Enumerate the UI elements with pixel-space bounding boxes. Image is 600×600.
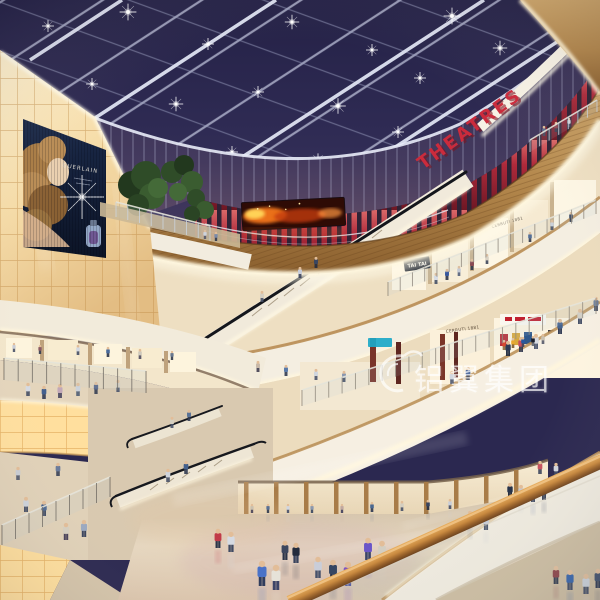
mall-atrium-photo: TAI TAI CERRUTI 1881 THEATRES THEATRES [0, 0, 600, 600]
mall-atrium-scene: TAI TAI CERRUTI 1881 THEATRES THEATRES [0, 0, 600, 600]
vignette [0, 0, 600, 600]
